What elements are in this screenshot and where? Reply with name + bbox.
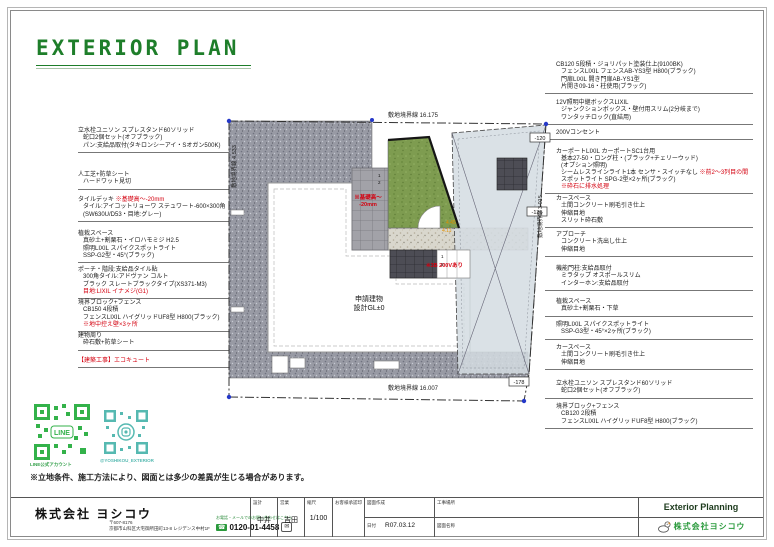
annotation-line: ミラタップ オスポールスリム [556, 273, 753, 280]
disclaimer-note: ※立地条件、施工方法により、図面とは多少の差異が生じる場合があります。 [30, 472, 309, 483]
annotation-line: ハードワット見切 [78, 179, 232, 186]
phone-icon: ☎ [216, 524, 227, 531]
annotation-artificial-turf: 人工芝+防草シート ハードワット見切 [78, 172, 232, 190]
scale-cell: 縮尺 1/100 [305, 498, 333, 537]
annotation-line: スリット砕石敷 [556, 218, 753, 225]
annotation-line: 土間コンクリート刷毛引き仕上 [556, 352, 753, 359]
annotation-warning: 目地:LIXIL イナメジ(G1) [78, 289, 232, 296]
tile-deck [352, 168, 388, 250]
annotation-text: シームレスラインライト1本 センサ・スイッチなし [561, 170, 700, 176]
building-label: 申請建物 [355, 294, 383, 303]
annotation-line: 蛇口2個セット(オフブラック) [556, 388, 753, 395]
annotation-line: フェンスLIXIL ハイグリッドUF8型 H800(ブラック) [78, 315, 232, 322]
drawing-name-label: 図面名称 [437, 523, 455, 529]
date-label: 日付 [367, 523, 376, 529]
annotation-planting-west: 植栽スペース 真砂土+割栗石・イロハモミジ H2.5 照明LIXIL スパイクス… [78, 231, 232, 263]
annotation-cb120-gate: CB120 5段積・ジョリパット塗装仕上(9100BK) フェンスLIXIL フ… [545, 62, 753, 94]
design-value: 中井 [251, 515, 277, 525]
cell-divider [365, 517, 434, 518]
annotation-line: (SW630U/D53・目地:グレー) [78, 212, 232, 219]
cell-divider [435, 517, 638, 518]
title-underline [36, 65, 251, 69]
annotation-line: SSP-G3型・45°×2ヶ所(ブラック) [556, 329, 753, 336]
service-box [374, 361, 399, 369]
annotation-line: 真砂土+割栗石・下草 [556, 306, 753, 313]
annotation-line: SSP-G2型・45°(ブラック) [78, 253, 232, 260]
annotation-car-space-south: カースペース 土間コンクリート刷毛引き仕上 伸縮目地 [545, 345, 753, 370]
annotation-warning: ※砕石に排水処理 [556, 184, 753, 191]
drawing-date-cell: 図面作成 日付 R07.03.12 [365, 498, 435, 537]
annotation-line: 蛇口2個セット(オフブラック) [78, 135, 232, 142]
annotation-car-space-north: カースペース 土間コンクリート刷毛引き仕上 伸縮目地 スリット砕石敷 [545, 196, 753, 228]
instagram-qr-code [104, 410, 148, 454]
boundary-label-right: 敷地境界線 3.015 [536, 195, 544, 238]
scale-label: 縮尺 [307, 500, 316, 506]
cell-divider [639, 517, 763, 518]
annotation-line: コンクリート洗出し仕上 [556, 239, 753, 246]
deck-height-note: ※基礎高～ [354, 193, 382, 201]
annotation-carport: カーポートLIXIL カーポートSC1台用 基本27-50・ロング柱・(ブラック… [545, 149, 753, 194]
annotation-200v-outlet: 200Vコンセント [545, 130, 753, 140]
deck-height-note: -20mm [359, 202, 377, 208]
annotation-warning: ※前2～3列目の間 [700, 170, 749, 176]
annotation-line: 土間コンクリート刷毛引き仕上 [556, 203, 753, 210]
annotation-junction-box: 12V照明中継ボックスLIXIL ジャンクションボックス・壁付用スリム(2分岐ま… [545, 100, 753, 125]
annotation-text: タイルデッキ [78, 197, 116, 203]
annotation-line: タイル:アイコットリョーワ ステュワート-600×300角 [78, 204, 232, 211]
annotation-line: 片開き09-16・柱使用(ブラック) [556, 84, 753, 91]
annotation-line: 真砂土+割栗石・イロハモミジ H2.5 [78, 238, 232, 245]
site-label: 工事場所 [437, 500, 455, 506]
drawing-sheet: EXTERIOR PLAN 立水栓ユニソン スプレスタンド60ソリッド 蛇口2個… [0, 0, 774, 547]
entrance-tile-pad [497, 158, 527, 190]
annotation-warning: ※基礎高～-20mm [116, 197, 165, 203]
annotation-line: フェンスLIXIL ハイグリッドUF8型 H800(ブラック) [556, 419, 753, 426]
dim-label: 4.11 [442, 228, 452, 234]
site-name-cell: 工事場所 図面名称 [435, 498, 639, 537]
approval-label: お客様承認印 [335, 500, 362, 506]
annotation-line: 門扉LIXIL 開き門扉AB-YS1型 [556, 77, 753, 84]
wall-tick-2 [231, 307, 244, 312]
annotation-porch-tile: ポーチ・階段:支給品タイル貼 300角タイル:アドヴァン コルト ブラック スレ… [78, 267, 232, 299]
brand-title: Exterior Planning [639, 502, 763, 512]
title-block: 株式会社 ヨシコウ 〒607-8176 京都市山科区大宅御所田町13-8 レジデ… [11, 497, 763, 537]
annotation-ecocute: 【建築工事】エコキュート [78, 358, 232, 368]
dim-label: 4.45 [446, 220, 456, 226]
annotation-line: ブラック スレートブラックタイプ(XS371-M3) [78, 282, 232, 289]
level-value: -120 [534, 136, 545, 142]
approval-cell: お客様承認印 [333, 498, 365, 537]
site-plan-drawing: -120 -135 -178 敷地境界線 16.175 敷地境界線 16.007… [210, 95, 566, 417]
design-cell: 設計 中井 [251, 498, 278, 537]
sales-cell: 営業 吉田 [278, 498, 305, 537]
annotation-tile-deck: タイルデッキ ※基礎高～-20mm タイル:アイコットリョーワ ステュワート-6… [78, 197, 232, 222]
company-address: 〒607-8176 京都市山科区大宅御所田町13-8 レジデンス中村1F [109, 520, 210, 532]
building-gl-label: 設計GL±0 [353, 303, 384, 312]
design-label: 設計 [253, 500, 262, 506]
boundary-label-top: 敷地境界線 16.175 [388, 111, 439, 119]
line-qr-caption: LINE公式アカウント [30, 462, 72, 468]
date-value: R07.03.12 [385, 522, 415, 529]
boundary-label-left: 敷地境界線 4.533 [230, 145, 238, 188]
annotation-tap-stand-east: 立水栓ユニソン スプレスタンド60ソリッド 蛇口2個セット(オフブラック) [545, 381, 753, 399]
annotation-line: 伸縮目地 [556, 211, 753, 218]
annotation-line: ジャンクションボックス・壁付用スリム(2分岐まで) [556, 107, 753, 114]
brand-company-logo: 株式会社ヨシコウ [674, 521, 746, 532]
sales-value: 吉田 [278, 515, 304, 525]
annotation-line: パン:支給品取付(タキロンシーアイ・Sオガン500K) [78, 143, 232, 150]
line-logo: LINE [54, 430, 70, 437]
boundary-label-bottom: 敷地境界線 16.007 [388, 384, 439, 392]
annotation-approach: アプローチ コンクリート洗出し仕上 伸縮目地 [545, 232, 753, 257]
outlet-200v-note: ※3B 200Vあり [426, 261, 463, 269]
level-value: -178 [513, 380, 524, 386]
mascot-dog-icon [657, 520, 671, 533]
annotation-tap-stand: 立水栓ユニソン スプレスタンド60ソリッド 蛇口2個セット(オフブラック) パン… [78, 128, 232, 153]
instagram-qr-caption: @YOSHIKOU_EXTERIOR [100, 458, 154, 463]
annotation-spotlight: 照明LIXIL スパイクスポットライト SSP-G3型・45°×2ヶ所(ブラック… [545, 322, 753, 340]
annotation-planting-east: 植栽スペース 真砂土+割栗石・下草 [545, 299, 753, 317]
annotation-line: 300角タイル:アドヴァン コルト [78, 274, 232, 281]
line-qr-code: LINE [34, 404, 90, 460]
annotation-line: 伸縮目地 [556, 360, 753, 367]
annotation-line: インターホン:支給品取付 [556, 281, 753, 288]
wall-tick-1 [231, 210, 244, 215]
annotation-warning: 【建築工事】エコキュート [78, 358, 232, 365]
postal-code: 〒607-8176 [109, 520, 133, 525]
annotation-building-perimeter: 建物周り 砕石敷+防草シート [78, 333, 232, 351]
address-line: 京都市山科区大宅御所田町13-8 レジデンス中村1F [109, 526, 210, 531]
annotation-boundary-fence-east: 境界ブロック+フェンス CB120 2段積 フェンスLIXIL ハイグリッドUF… [545, 404, 753, 429]
sales-label: 営業 [280, 500, 289, 506]
annotation-line: 砕石敷+防草シート [78, 340, 232, 347]
annotation-line: CB150 4段積 [78, 307, 232, 314]
annotation-line: フェンスLIXIL フェンスAB-YS3型 H800(ブラック) [556, 69, 753, 76]
annotation-line: 伸縮目地 [556, 247, 753, 254]
page-title: EXTERIOR PLAN [36, 36, 239, 60]
brand-cell: Exterior Planning 株式会社ヨシコウ [639, 498, 763, 537]
annotation-line: 200Vコンセント [556, 130, 753, 137]
drawing-label: 図面作成 [367, 500, 385, 506]
annotation-line: 照明LIXIL スパイクスポットライト [78, 246, 232, 253]
annotation-warning: ※地中控え壁×3ヶ所 [78, 322, 232, 329]
annotation-line: ワンタッチロック(直結用) [556, 115, 753, 122]
company-cell: 株式会社 ヨシコウ 〒607-8176 京都市山科区大宅御所田町13-8 レジデ… [11, 498, 251, 537]
annotation-boundary-fence-west: 境界ブロック+フェンス CB150 4段積 フェンスLIXIL ハイグリッドUF… [78, 300, 232, 332]
annotation-line: CB120 2段積 [556, 411, 753, 418]
scale-value: 1/100 [305, 515, 332, 522]
annotation-function-pillar: 機能門柱:支給品取付 ミラタップ オスポールスリム インターホン:支給品取付 [545, 266, 753, 291]
